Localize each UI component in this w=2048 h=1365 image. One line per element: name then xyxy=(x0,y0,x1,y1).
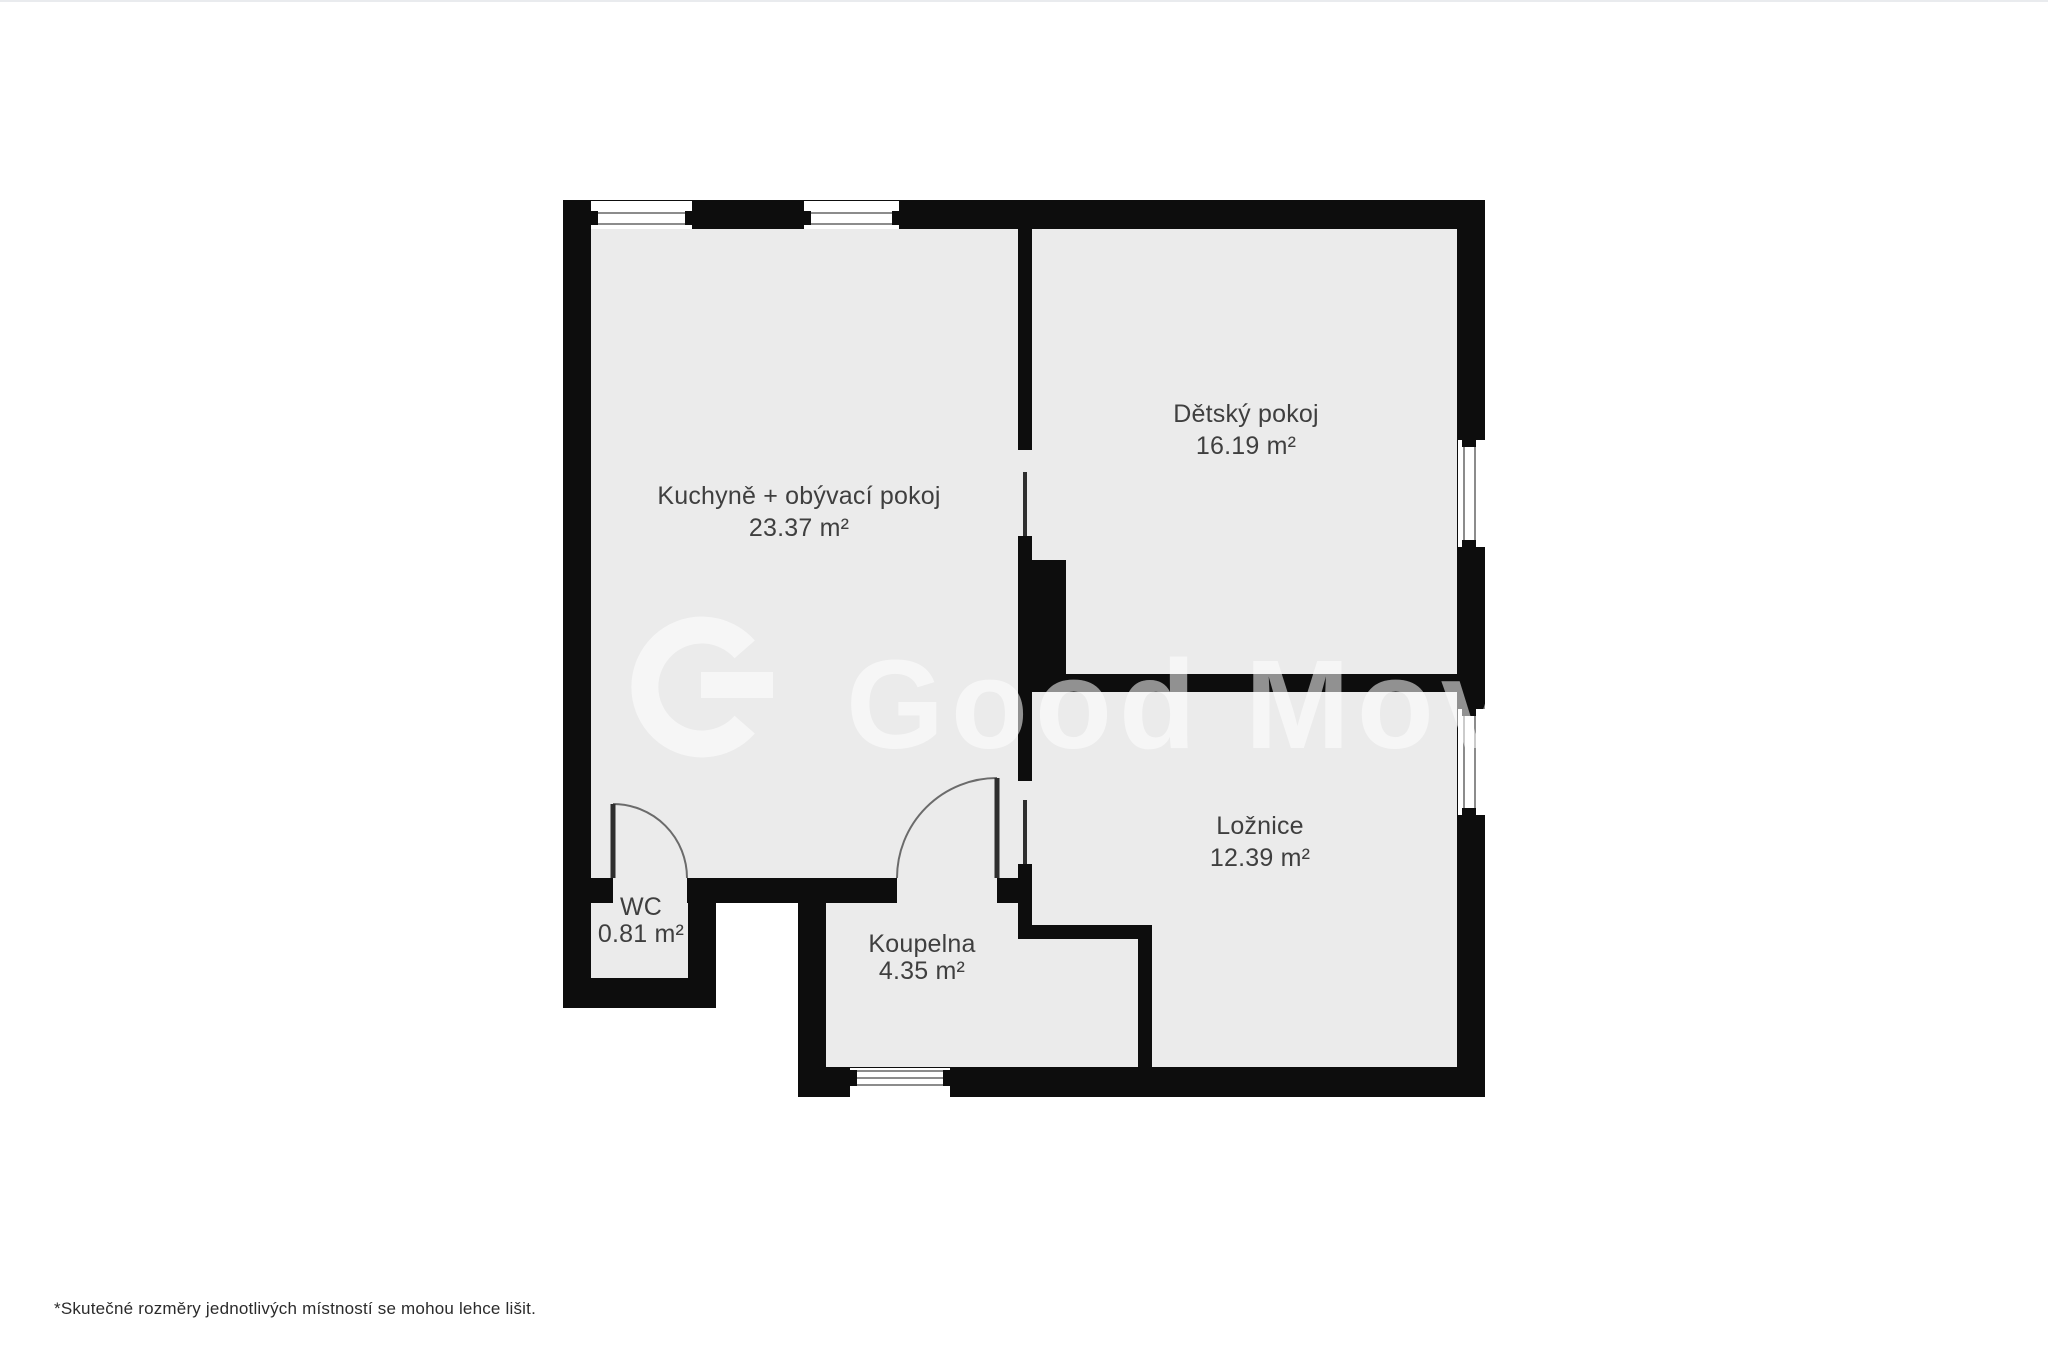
room-area: 12.39 m² xyxy=(1210,842,1310,874)
room-label-bedroom: Ložnice 12.39 m² xyxy=(1210,810,1310,874)
door-arc-bathroom xyxy=(897,778,997,878)
goodmove-g-icon xyxy=(628,604,788,779)
room-label-bathroom: Koupelna 4.35 m² xyxy=(868,931,975,985)
room-name: Kuchyně + obývací pokoj xyxy=(657,480,940,512)
room-name: Koupelna xyxy=(868,931,975,958)
room-label-kids-room: Dětský pokoj 16.19 m² xyxy=(1173,398,1319,462)
room-area: 4.35 m² xyxy=(868,958,975,985)
footnote: *Skutečné rozměry jednotlivých místností… xyxy=(54,1299,536,1319)
room-name: Ložnice xyxy=(1210,810,1310,842)
door-arc-wc xyxy=(613,804,687,878)
room-name: WC xyxy=(598,894,684,921)
room-area: 0.81 m² xyxy=(598,921,684,948)
room-area: 23.37 m² xyxy=(657,512,940,544)
room-label-wc: WC 0.81 m² xyxy=(598,894,684,948)
room-label-kitchen: Kuchyně + obývací pokoj 23.37 m² xyxy=(657,480,940,544)
room-area: 16.19 m² xyxy=(1173,430,1319,462)
watermark-text: Good Move xyxy=(846,632,1595,777)
room-name: Dětský pokoj xyxy=(1173,398,1319,430)
floorplan-canvas: Good Move Kuchyně + obývací pokoj 23.37 … xyxy=(0,0,2048,1365)
